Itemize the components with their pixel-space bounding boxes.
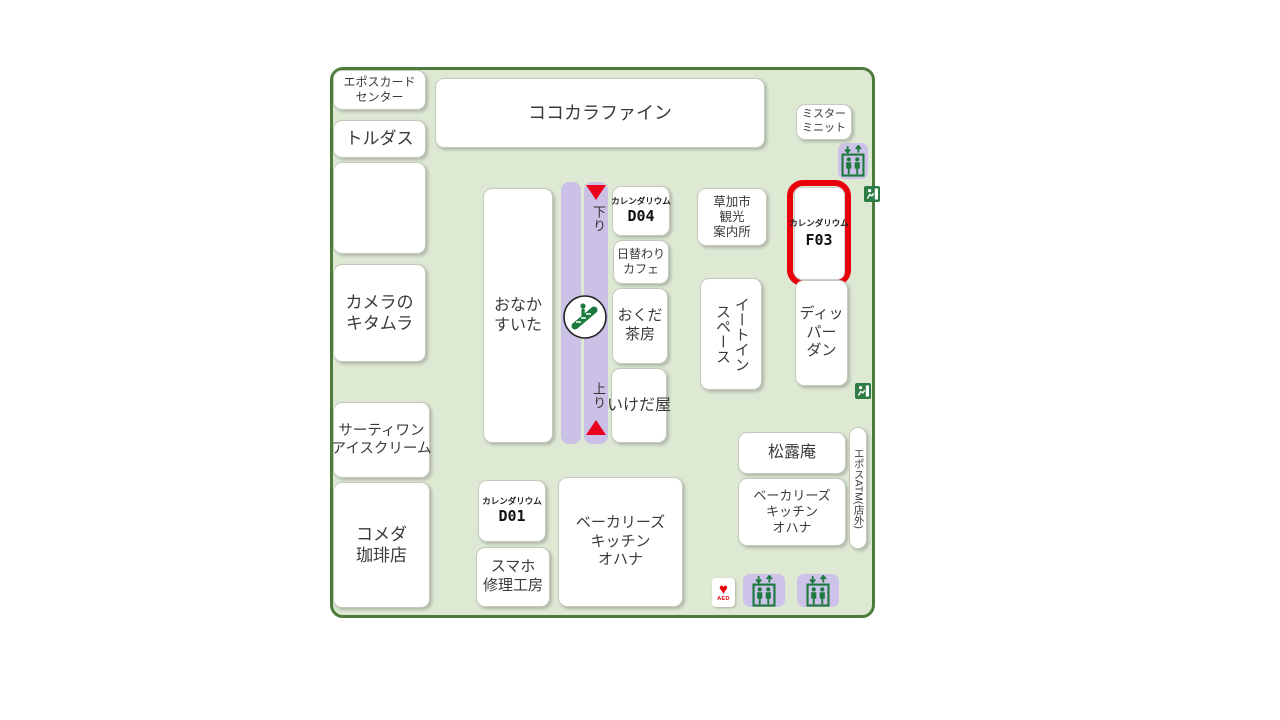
elevator-icon (743, 574, 785, 607)
epos-atm-label: エポスATM(店外) (849, 427, 867, 549)
heart-icon: ♥ (719, 582, 728, 597)
mall-floor-map: エポスカード センター トルダス カメラの キタムラ サーティワン アイスクリー… (330, 67, 875, 618)
shop-shoroan: 松露庵 (738, 432, 846, 474)
down-arrow-icon (586, 185, 606, 200)
calendarium-f03-code: F03 (805, 231, 832, 249)
calendarium-f03-name: カレンダリウム (789, 217, 849, 229)
shop-soka-tourist-info: 草加市 観光 案内所 (697, 188, 767, 246)
shop-dipper-dan: ディッパー ダン (795, 280, 848, 386)
shop-calendarium-d01: カレンダリウム D01 (478, 480, 546, 542)
shop-tordas: トルダス (333, 120, 426, 158)
calendarium-d01-name: カレンダリウム (482, 496, 542, 507)
eat-in-space: イートイン スペース (700, 278, 762, 390)
shop-calendarium-f03: カレンダリウム F03 (794, 187, 845, 280)
elevator-icon (797, 574, 839, 607)
screenshot-canvas: エポスカード センター トルダス カメラの キタムラ サーティワン アイスクリー… (0, 0, 1280, 720)
escalator-icon (562, 294, 608, 340)
shop-calendarium-d04: カレンダリウム D04 (612, 186, 670, 236)
shop-bakerys-kitchen-ohana-center: ベーカリーズ キッチン オハナ (558, 477, 683, 607)
shop-thirty-one-ice-cream: サーティワン アイスクリーム (333, 402, 430, 478)
shop-komeda-coffee: コメダ 珈琲店 (333, 482, 430, 608)
map-content: エポスカード センター トルダス カメラの キタムラ サーティワン アイスクリー… (333, 70, 872, 615)
elevator-icon (838, 143, 868, 179)
up-arrow-icon (586, 420, 606, 435)
escalator-up-label: 上り (589, 382, 608, 410)
calendarium-d04-code: D04 (627, 207, 654, 226)
emergency-exit-icon (864, 186, 880, 202)
shop-camera-kitamura: カメラの キタムラ (333, 264, 426, 362)
calendarium-d01-code: D01 (498, 507, 525, 526)
shop-epos-card-center: エポスカード センター (333, 70, 426, 110)
shop-cocokara-fine: ココカラファイン (435, 78, 765, 148)
shop-ikedaya: いけだ屋 (611, 368, 667, 443)
shop-okuda-sabo: おくだ 茶房 (612, 288, 668, 364)
emergency-exit-icon (855, 383, 871, 399)
shop-vacant (333, 162, 426, 254)
aed-icon: ♥ AED (712, 578, 735, 607)
highlight-ring-f03: カレンダリウム F03 (787, 180, 851, 286)
shop-sumaho-repair: スマホ 修理工房 (476, 547, 550, 607)
shop-higawari-cafe: 日替わり カフェ (613, 240, 669, 284)
aed-label: AED (717, 597, 730, 603)
shop-onaka-suita: おなか すいた (483, 188, 553, 443)
calendarium-d04-name: カレンダリウム (611, 196, 671, 207)
shop-mister-minit: ミスター ミニット (796, 104, 852, 140)
shop-bakerys-kitchen-ohana-right: ベーカリーズ キッチン オハナ (738, 478, 846, 546)
escalator-down-label: 下り (589, 205, 608, 233)
